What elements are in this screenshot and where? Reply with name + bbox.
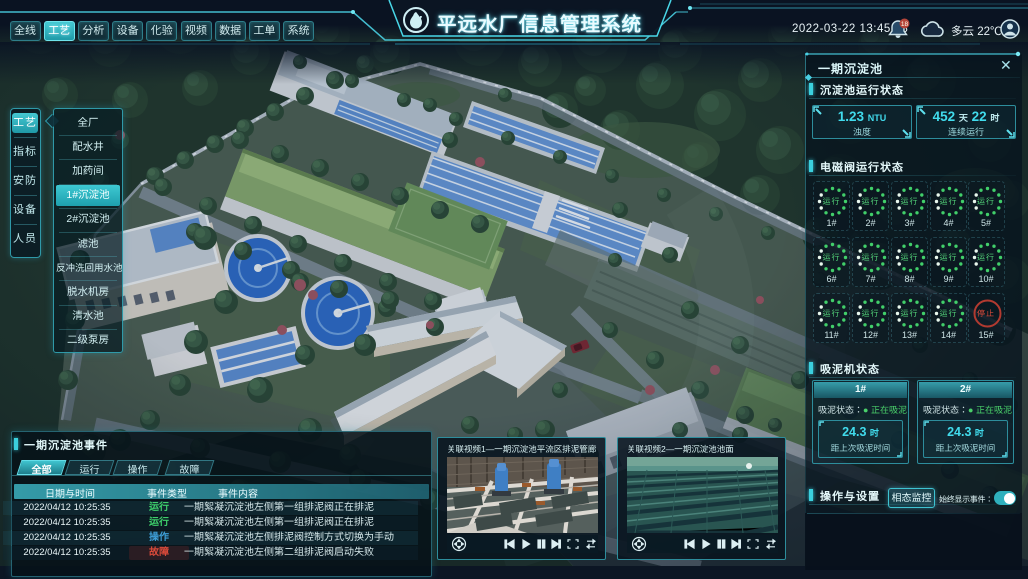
svg-text:18: 18 [901,21,909,28]
